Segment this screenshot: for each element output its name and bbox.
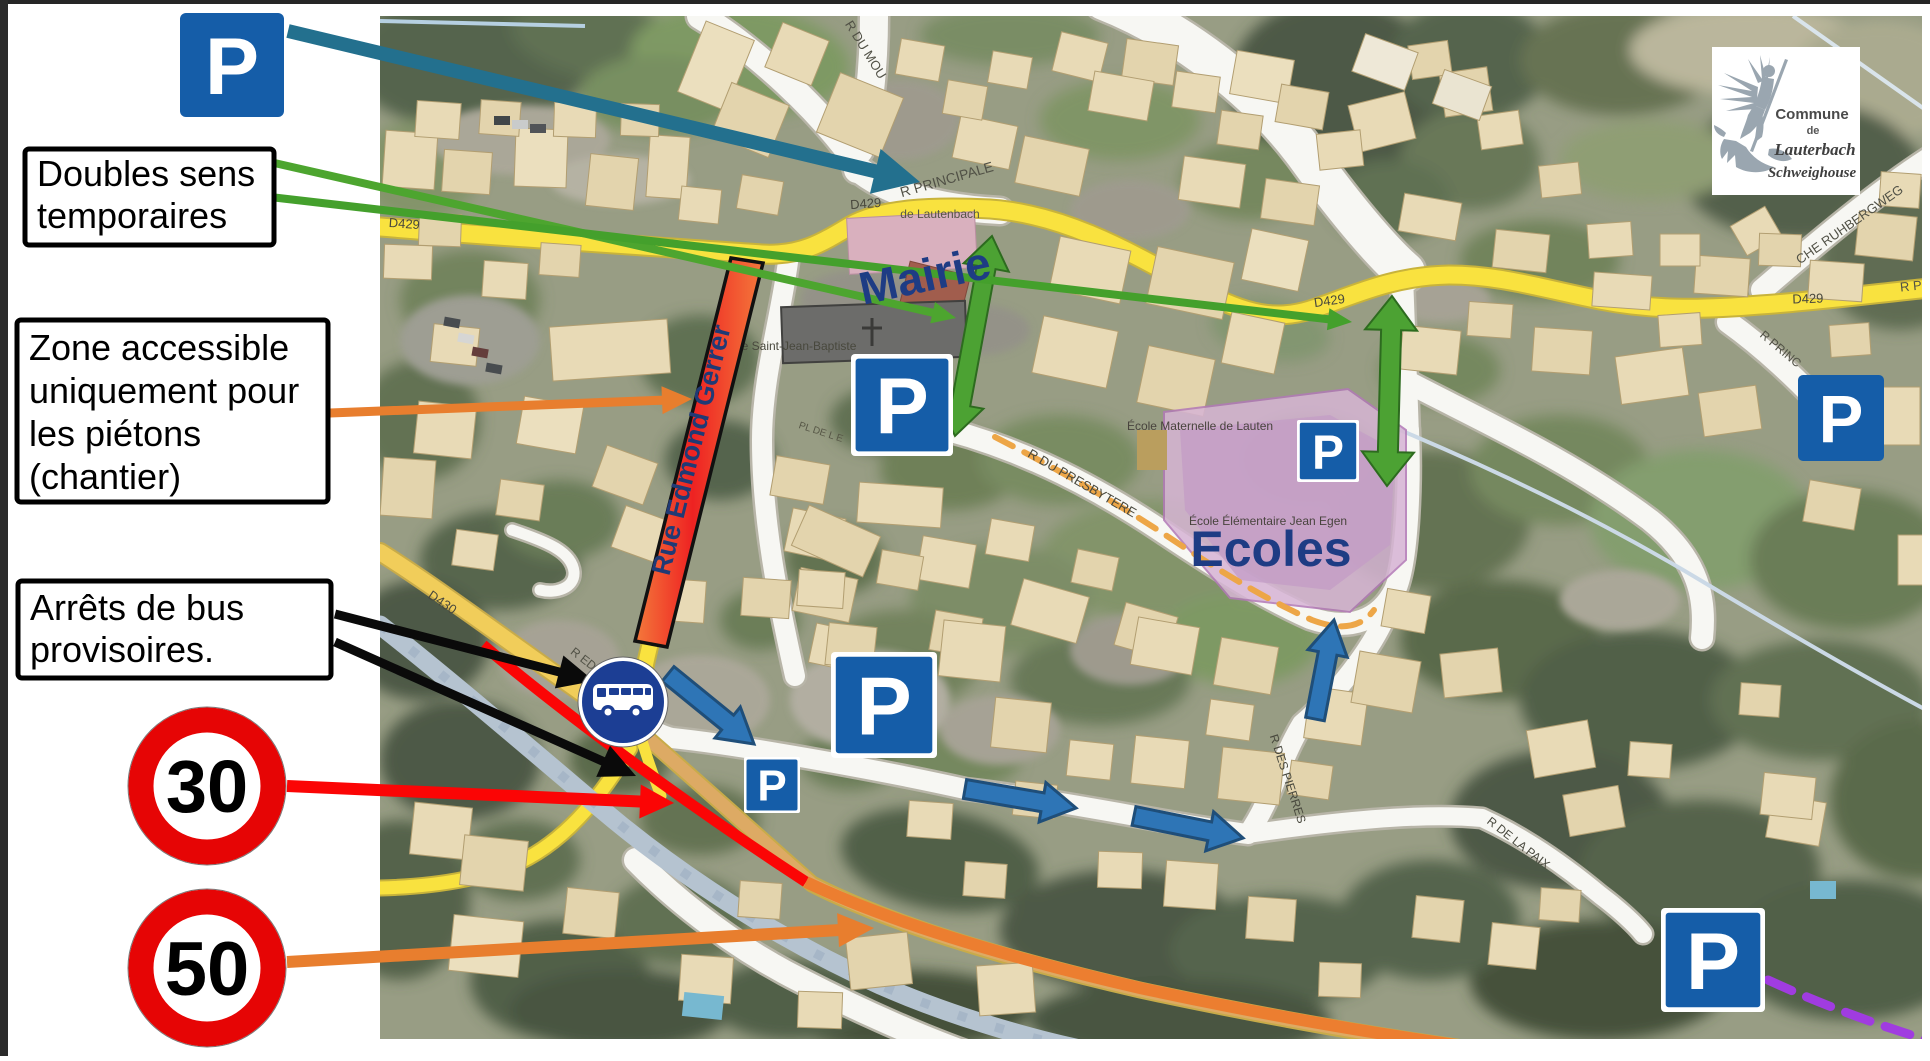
svg-text:P: P xyxy=(875,362,928,451)
svg-text:P: P xyxy=(1819,382,1864,457)
svg-text:Commune: Commune xyxy=(1775,106,1848,123)
svg-text:Ecoles: Ecoles xyxy=(1190,521,1351,577)
svg-text:P: P xyxy=(205,22,259,112)
svg-text:P: P xyxy=(856,660,911,753)
svg-text:Doubles sens: Doubles sens xyxy=(37,153,255,194)
svg-text:uniquement pour: uniquement pour xyxy=(29,370,299,411)
svg-text:Zone accessible: Zone accessible xyxy=(29,327,289,368)
svg-text:provisoires.: provisoires. xyxy=(30,629,214,670)
svg-text:30: 30 xyxy=(166,745,248,828)
svg-text:50: 50 xyxy=(165,927,250,1012)
svg-text:temporaires: temporaires xyxy=(37,195,227,236)
svg-text:Schweighouse: Schweighouse xyxy=(1768,165,1857,181)
svg-text:P: P xyxy=(757,762,786,811)
svg-text:Lauterbach: Lauterbach xyxy=(1773,140,1855,159)
svg-text:les piétons: les piétons xyxy=(29,413,201,454)
svg-text:de: de xyxy=(1807,125,1820,137)
svg-text:P: P xyxy=(1686,917,1740,1007)
svg-text:(chantier): (chantier) xyxy=(29,456,181,497)
svg-text:P: P xyxy=(1312,426,1344,479)
svg-text:Arrêts de bus: Arrêts de bus xyxy=(30,587,244,628)
